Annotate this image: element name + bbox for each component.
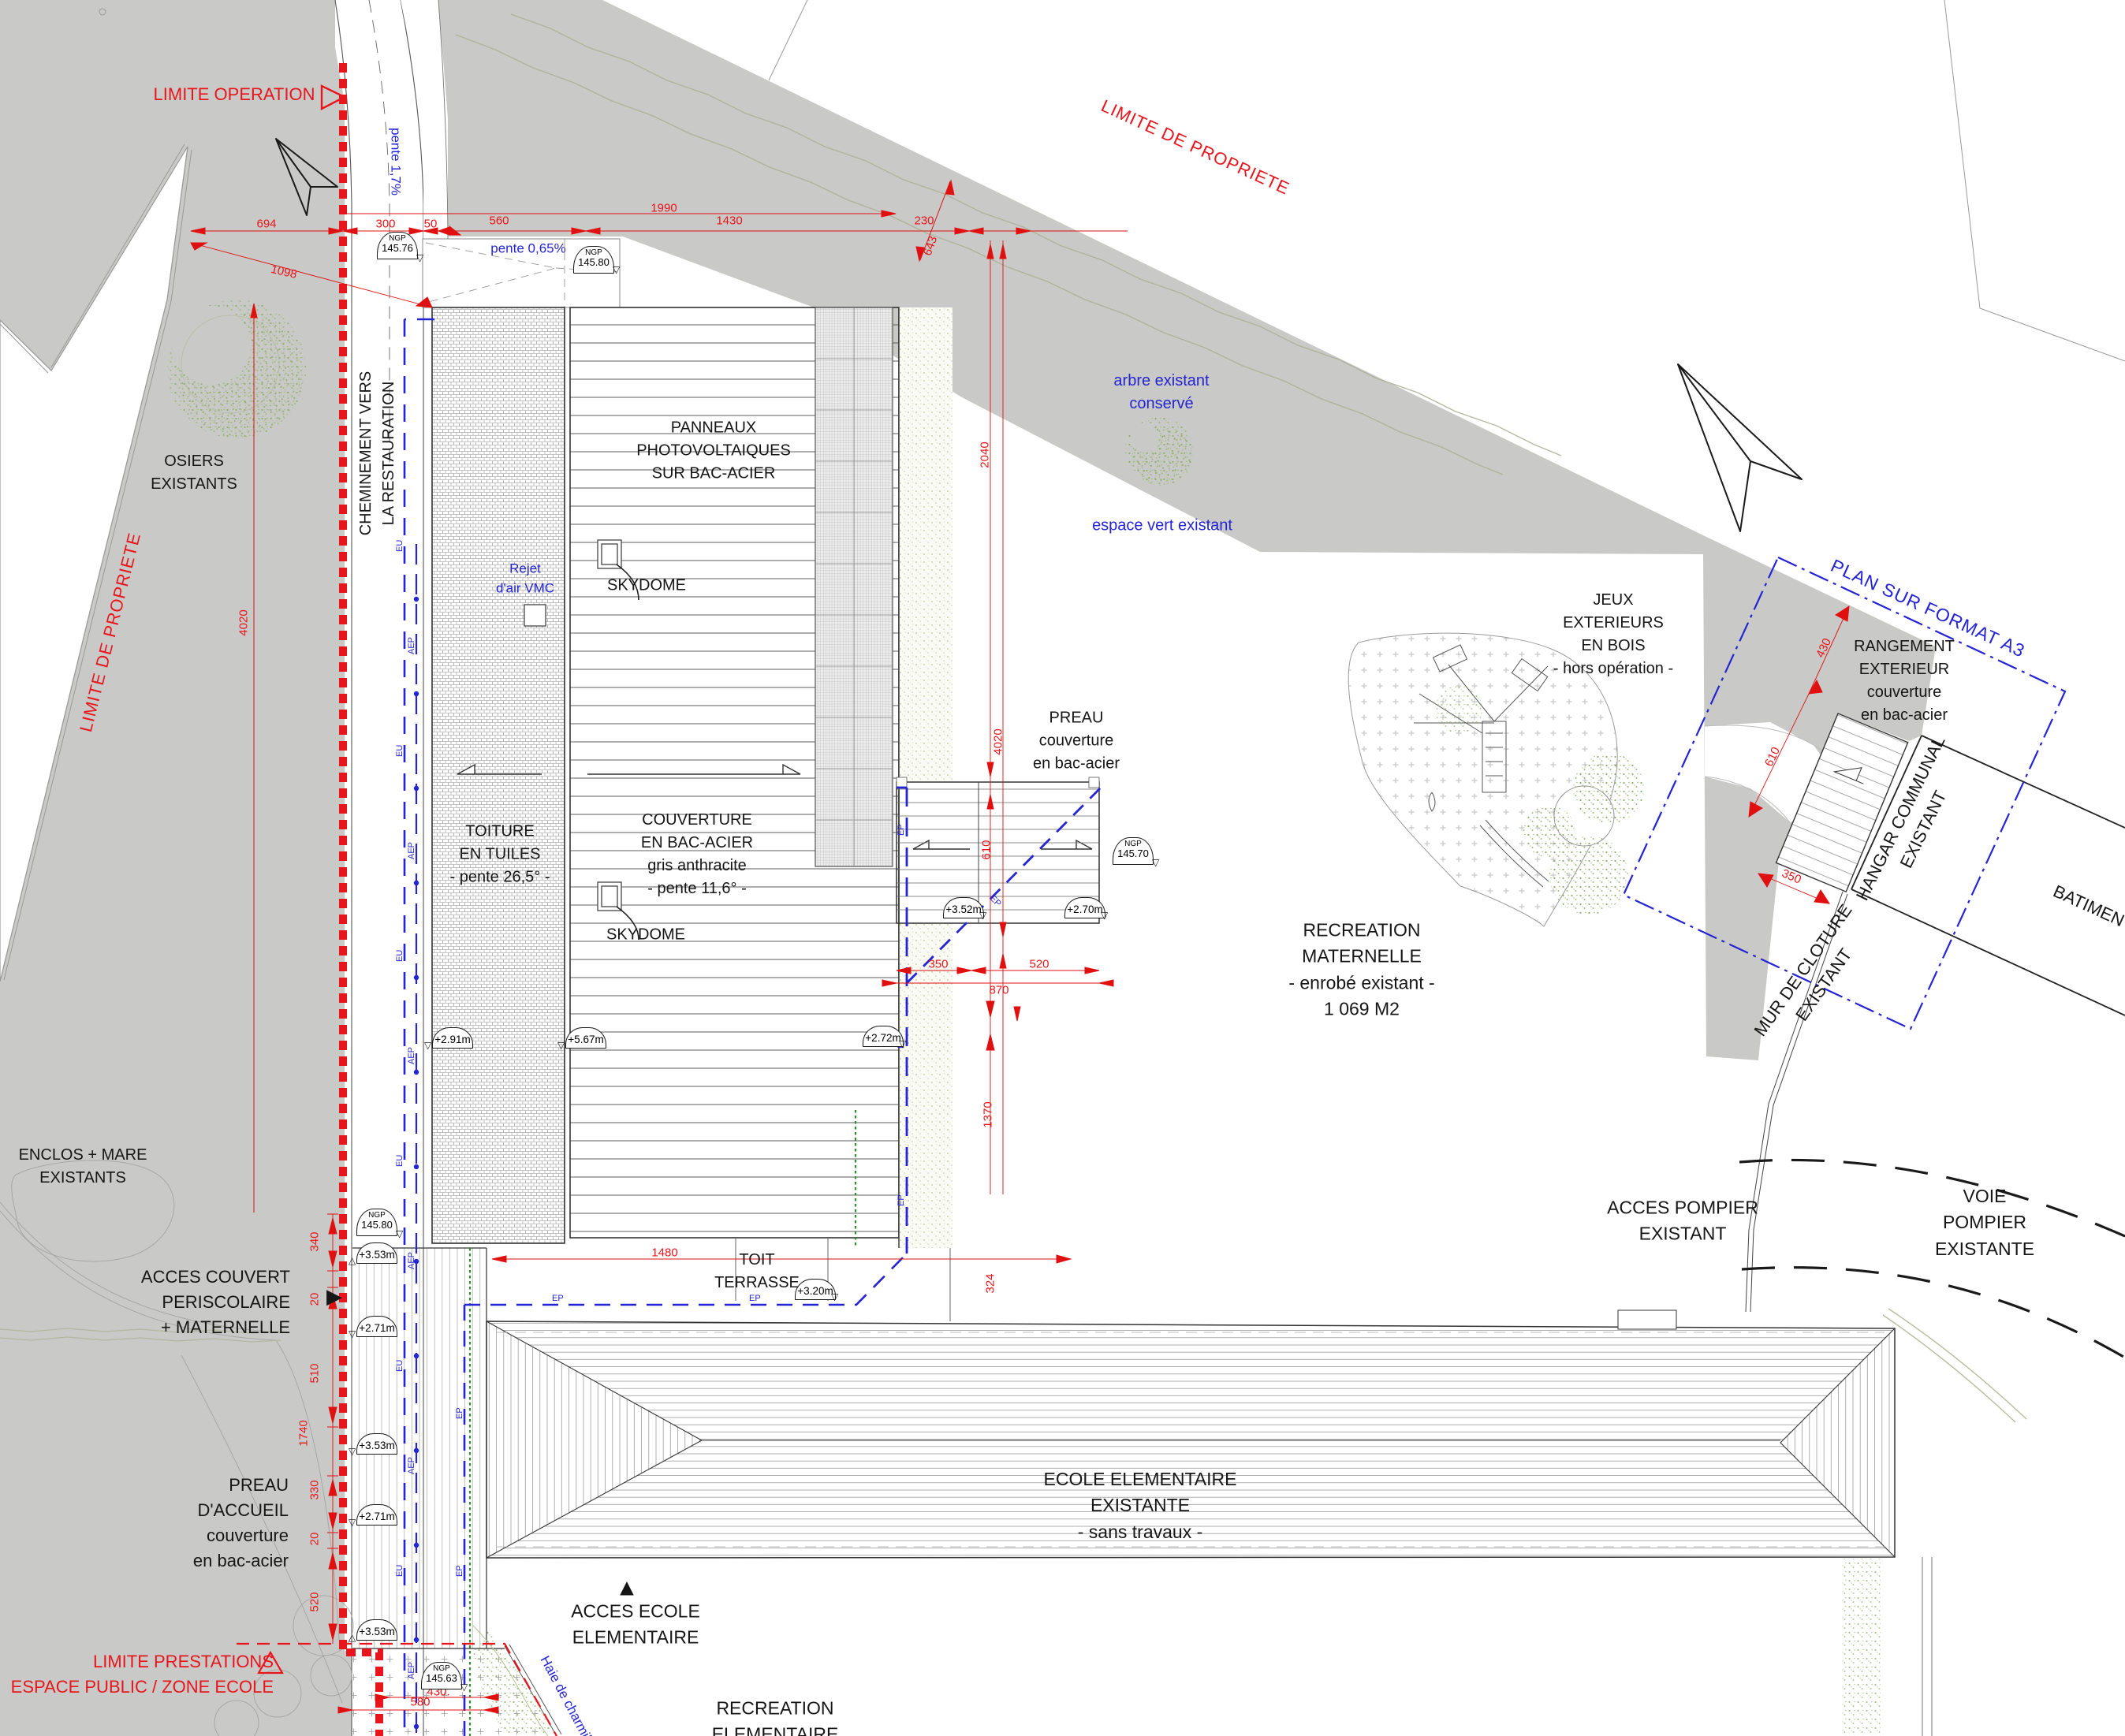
svg-text:EP: EP [455,1565,464,1577]
svg-text:EU: EU [395,1155,404,1167]
svg-text:EU: EU [395,745,404,757]
svg-text:EU: EU [395,1565,404,1577]
svg-text:EP: EP [749,1294,761,1303]
svg-text:EU: EU [395,540,404,552]
svg-text:AEP: AEP [407,1457,416,1474]
svg-text:EU: EU [395,950,404,962]
svg-text:AEP: AEP [407,637,416,654]
svg-text:EP: EP [897,824,906,836]
svg-text:AEP: AEP [407,842,416,859]
svg-text:EU: EU [395,1360,404,1372]
svg-text:EP: EP [455,1407,464,1419]
svg-text:EP: EP [552,1294,564,1303]
svg-text:EP: EP [897,1194,906,1206]
svg-text:AEP: AEP [407,1662,416,1679]
svg-text:AEP: AEP [407,1047,416,1064]
